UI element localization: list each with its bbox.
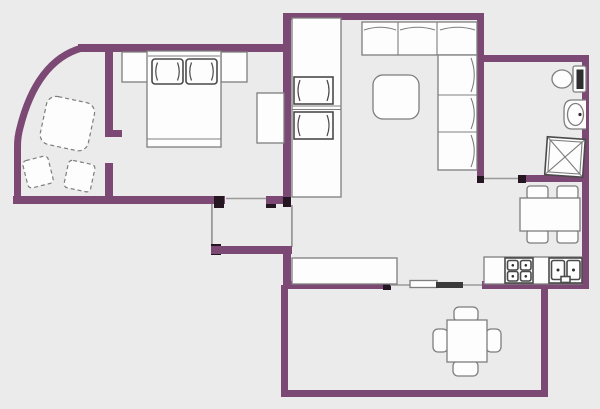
wall-balcony-divider-upper (105, 44, 113, 137)
wall-living-right (477, 13, 484, 183)
kitchen (484, 186, 582, 284)
shower-cabin (545, 137, 586, 178)
dining-chair (527, 230, 548, 243)
dining-chair (557, 186, 578, 199)
bedroom-dresser (257, 93, 284, 143)
vestibule-open-side-right (291, 205, 293, 247)
patio-table (447, 320, 487, 362)
wall-cap (518, 175, 526, 183)
dining-chair (557, 230, 578, 243)
wardrobe-column (292, 18, 341, 197)
patio-door-leaf (436, 282, 463, 288)
coffee-table (373, 75, 419, 119)
wall-bedroom-bottom-left (13, 196, 225, 204)
nightstand-right (221, 52, 247, 82)
wall-patio-left (281, 285, 288, 397)
balcony-chair-left (22, 155, 54, 188)
wall-cap (477, 176, 484, 183)
washbasin (564, 100, 586, 129)
bathroom (545, 66, 586, 177)
floor-plan (0, 0, 600, 409)
dining-table (520, 198, 580, 231)
bedroom (122, 51, 284, 147)
nightstand-left (122, 52, 148, 82)
living-room (292, 18, 477, 284)
patio-chair-right (486, 329, 501, 352)
balcony-chair-right (63, 160, 95, 193)
armchair-upper (294, 77, 333, 104)
armchair-lower (294, 112, 333, 139)
patio (433, 307, 501, 376)
dining-chair (527, 186, 548, 199)
floor-plan-canvas (0, 0, 600, 409)
toilet (552, 66, 586, 92)
balcony (22, 95, 96, 193)
pillow-left (152, 59, 183, 84)
pillow-right (186, 59, 217, 84)
patio-chair-left (433, 329, 448, 352)
sideboard-counter (292, 258, 397, 284)
vestibule-open-side-left (211, 204, 213, 247)
wall-patio-bottom (281, 390, 548, 397)
wall-cap (283, 197, 291, 207)
patio-door-frame (410, 281, 437, 288)
double-sink (549, 258, 582, 283)
stove-4-burners (505, 258, 533, 283)
wall-patio-right (541, 287, 548, 397)
patio-chair-bottom (453, 361, 478, 376)
wall-cap (214, 196, 224, 208)
balcony-table (38, 95, 96, 153)
wall-bathroom-top (477, 55, 589, 62)
wall-balcony-divider-foot (105, 130, 122, 137)
wall-vestibule-bottom (211, 246, 292, 254)
